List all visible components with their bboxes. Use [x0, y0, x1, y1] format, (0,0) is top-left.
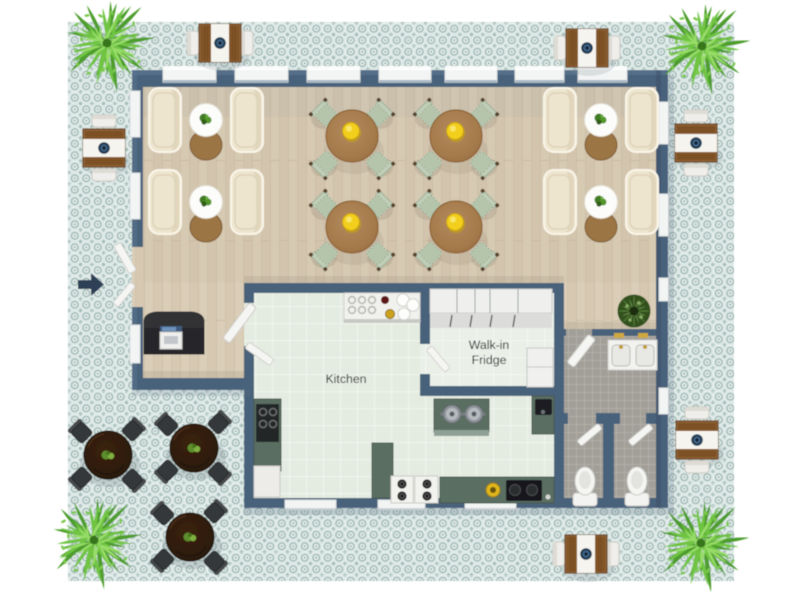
svg-text:Kitchen: Kitchen — [325, 372, 366, 386]
svg-text:Walk-in: Walk-in — [469, 338, 510, 352]
svg-text:Fridge: Fridge — [472, 353, 507, 367]
